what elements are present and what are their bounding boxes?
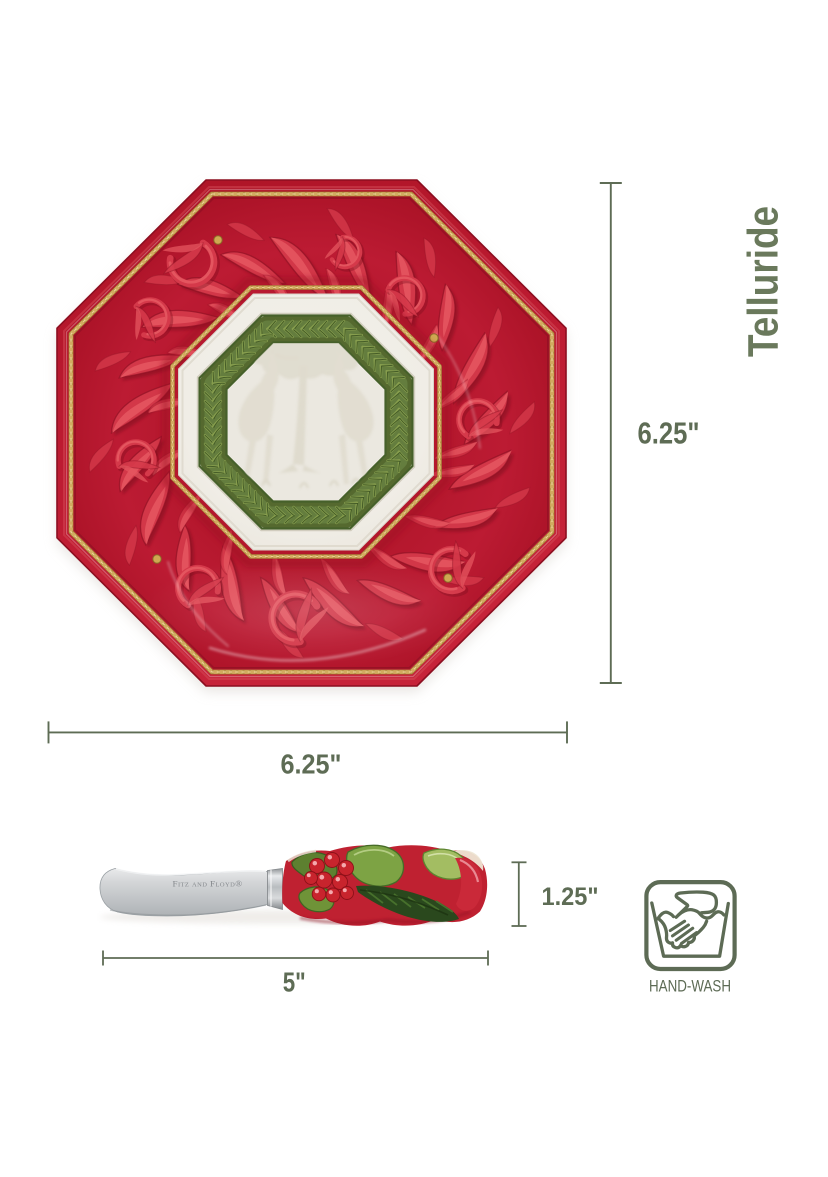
svg-text:5": 5" bbox=[283, 967, 306, 998]
svg-text:HAND-WASH: HAND-WASH bbox=[649, 976, 731, 995]
svg-text:Fitz and Floyd®: Fitz and Floyd® bbox=[173, 880, 243, 889]
svg-text:6.25": 6.25" bbox=[638, 416, 700, 450]
svg-text:1.25": 1.25" bbox=[542, 883, 599, 911]
svg-text:6.25": 6.25" bbox=[281, 749, 342, 780]
svg-text:Telluride: Telluride bbox=[741, 206, 788, 357]
